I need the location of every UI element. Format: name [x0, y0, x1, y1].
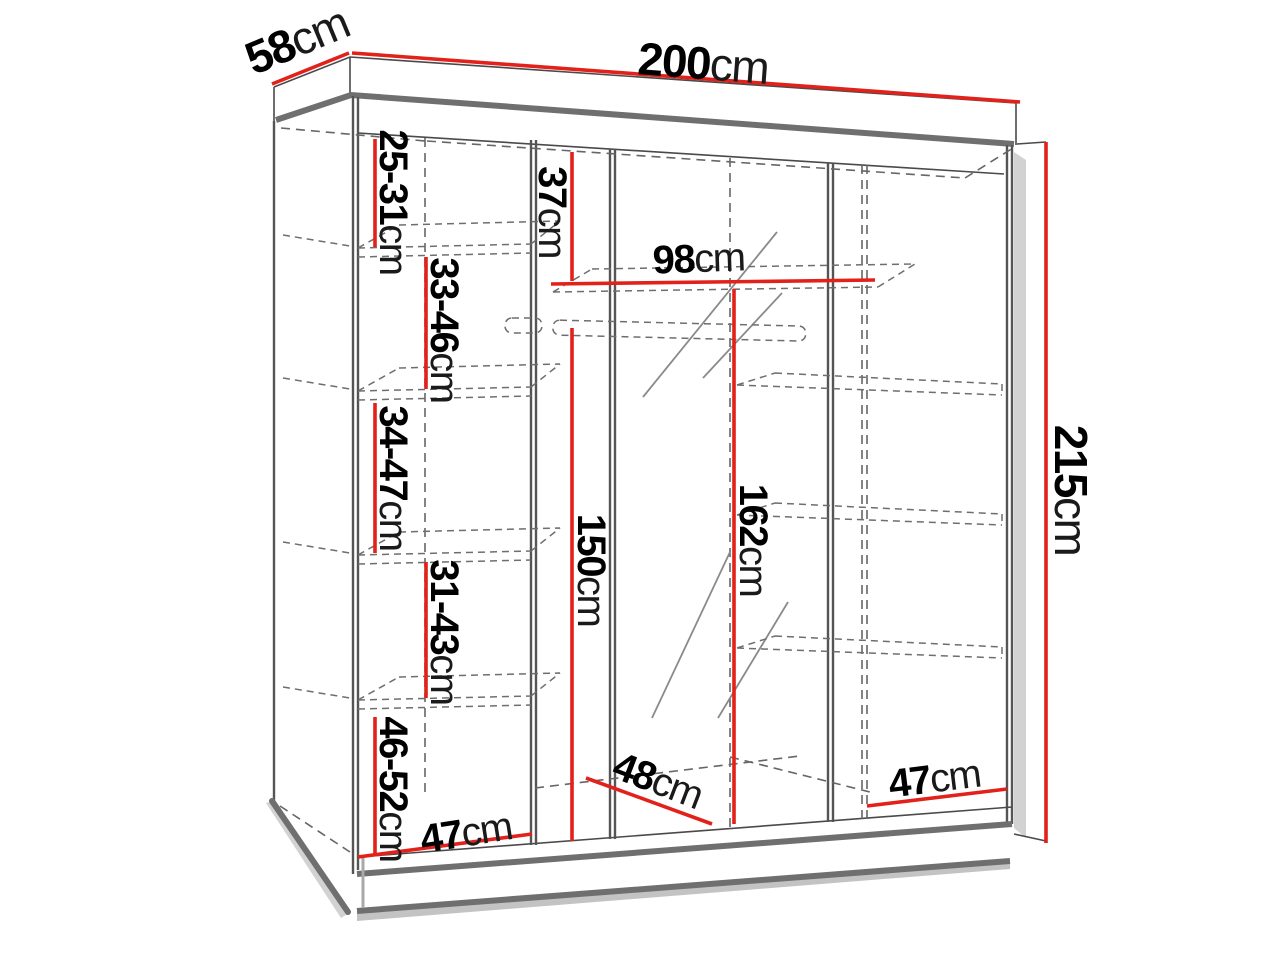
hidden-floor-edges: [280, 756, 870, 852]
label-gap1: 25-31cm: [371, 129, 415, 274]
right-shelf-1: [737, 373, 1002, 395]
label-gap2: 33-46cm: [422, 257, 466, 402]
mirror-line-4: [718, 602, 788, 718]
dimension-labels: 58cm 200cm 215cm 25-31cm 33-46cm 34-47cm…: [238, 0, 1097, 862]
height-tick-top: [1017, 142, 1046, 144]
right-shelf-2: [737, 503, 1002, 525]
mirror-line-2: [703, 293, 782, 378]
label-floor-right: 47cm: [886, 752, 983, 807]
left-shelf-1: [283, 221, 560, 257]
height-tick-bottom: [1014, 834, 1046, 841]
hanging-rail: [553, 320, 806, 341]
label-gap4: 31-43cm: [422, 559, 466, 704]
label-width: 200cm: [636, 32, 770, 94]
front-right-edge: [1007, 145, 1012, 824]
dim-line-shelf-width: [551, 280, 875, 284]
front-left-edge: [353, 96, 358, 874]
mirror-marks: [643, 232, 788, 718]
label-floor-left: 47cm: [417, 804, 515, 862]
label-depth: 58cm: [238, 0, 356, 85]
label-shelf-width: 98cm: [652, 235, 745, 282]
left-panel-bottom-edge: [272, 801, 348, 912]
diagram-canvas: 58cm 200cm 215cm 25-31cm 33-46cm 34-47cm…: [0, 0, 1280, 960]
label-floor-middle: 48cm: [607, 744, 708, 818]
left-shelf-4: [283, 673, 560, 709]
mirror-door-right-stile: [828, 163, 833, 822]
wardrobe-dimension-diagram: 58cm 200cm 215cm 25-31cm 33-46cm 34-47cm…: [0, 0, 1280, 960]
label-gap3: 34-47cm: [371, 405, 415, 550]
label-height: 215cm: [1045, 425, 1097, 556]
label-middle-section: 162cm: [731, 484, 775, 597]
right-side-shadow: [1014, 152, 1026, 838]
hidden-right-partition: [862, 165, 867, 820]
label-top-section: 37cm: [530, 166, 574, 258]
label-gap5: 46-52cm: [371, 716, 415, 861]
right-shelf-3: [737, 636, 1002, 658]
ceiling-line: [358, 133, 1004, 174]
mirror-line-3: [652, 552, 730, 718]
label-hanging-space: 150cm: [569, 514, 613, 627]
left-shelf-2: [283, 364, 560, 400]
mirror-door-left-stile: [610, 149, 615, 839]
left-shelf-3: [283, 528, 560, 564]
